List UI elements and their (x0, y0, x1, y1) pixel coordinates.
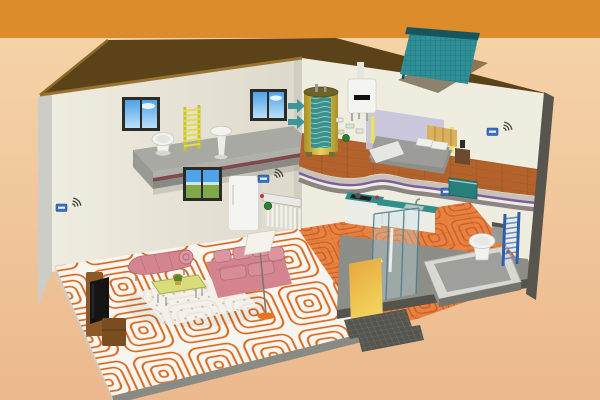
fridge (229, 176, 262, 230)
solar-collector (400, 27, 480, 84)
boiler-flue (357, 62, 364, 80)
window-upstairs-right (250, 89, 287, 121)
wall-cabinet (449, 178, 477, 199)
background-sky-band (0, 0, 600, 38)
wall-lamp-bar-left (371, 116, 375, 143)
wall-cut-edge-left (38, 90, 52, 305)
nightstand (455, 148, 470, 165)
nightstand-lamp (460, 140, 465, 148)
landscape-window (183, 167, 222, 201)
scene-canvas (0, 0, 600, 400)
window-upstairs-left (122, 97, 160, 131)
heating-system-illustration (0, 0, 600, 400)
